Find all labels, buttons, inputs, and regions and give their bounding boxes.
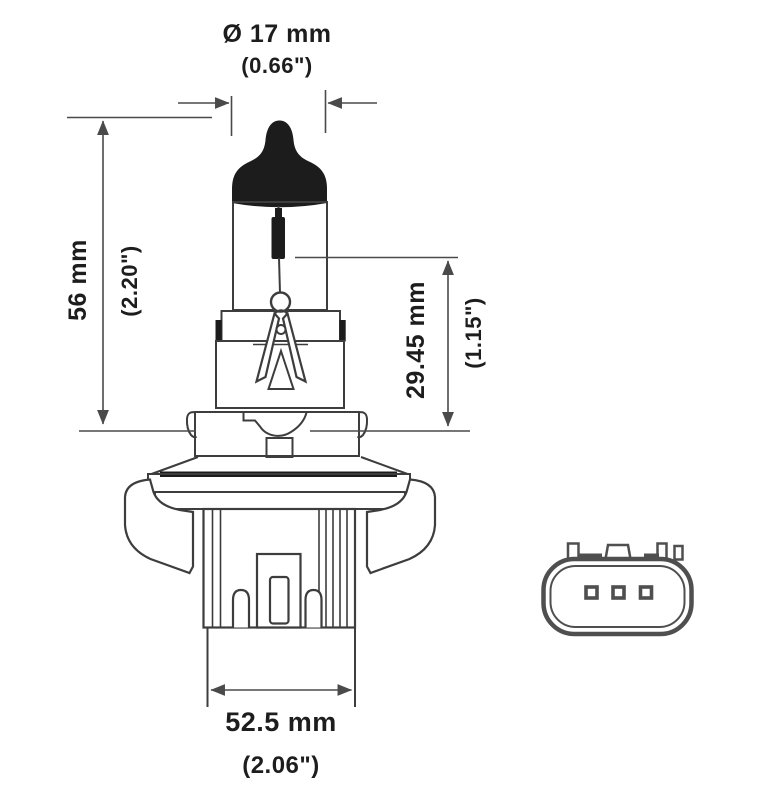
dim-overall-length-inch: (2.20") — [117, 245, 142, 316]
plug-latch-tab-left — [233, 590, 249, 628]
plug-center-slot — [270, 577, 289, 624]
strut-inner-triangle — [269, 351, 294, 389]
dim-overall-length-mm: 56 mm — [64, 239, 92, 321]
plug-lower-shell — [208, 628, 356, 707]
technical-drawing-page: Ø 17 mm (0.66") 56 mm (2.20") 29.45 mm (… — [0, 0, 759, 800]
base-plate-key-square — [267, 438, 293, 457]
connector-terminals — [586, 587, 652, 598]
filament-assembly — [271, 206, 290, 312]
terminal-3 — [641, 587, 652, 598]
base-plate — [187, 412, 367, 457]
collar-edge-mark-left — [216, 320, 222, 342]
dim-base-width: 52.5 mm (2.06") — [211, 690, 352, 779]
dim-base-width-mm: 52.5 mm — [225, 707, 337, 737]
bulb-front-view — [125, 121, 435, 708]
base-flange — [148, 472, 410, 510]
retaining-wing-right — [367, 480, 435, 574]
dim-diameter: Ø 17 mm (0.66") — [178, 20, 377, 136]
strut-rivet-circle — [277, 325, 286, 334]
dim-light-center-length-inch: (1.15") — [461, 297, 486, 368]
connector-face-view — [544, 544, 692, 635]
filament-support-circle — [271, 293, 290, 312]
dim-diameter-mm: Ø 17 mm — [222, 20, 331, 48]
filament — [272, 217, 286, 259]
dim-light-center-length-mm: 29.45 mm — [402, 281, 430, 399]
plug-latch-tab-right — [306, 590, 322, 628]
base-shoulder — [152, 457, 408, 474]
plug-body — [204, 509, 356, 628]
dim-diameter-inch: (0.66") — [241, 53, 312, 78]
bulb-tip-dome — [232, 121, 327, 208]
terminal-1 — [586, 587, 597, 598]
dim-overall-length: 56 mm (2.20") — [64, 118, 212, 432]
retaining-wing-left — [125, 480, 193, 574]
bulb-technical-drawing: Ø 17 mm (0.66") 56 mm (2.20") 29.45 mm (… — [0, 0, 759, 800]
collar-edge-mark-right — [340, 320, 346, 342]
terminal-2 — [613, 587, 624, 598]
dim-light-center-length: 29.45 mm (1.15") — [295, 258, 486, 432]
support-strut — [257, 310, 306, 389]
dim-base-width-inch: (2.06") — [242, 752, 320, 779]
base-plate-keyway — [244, 412, 307, 436]
